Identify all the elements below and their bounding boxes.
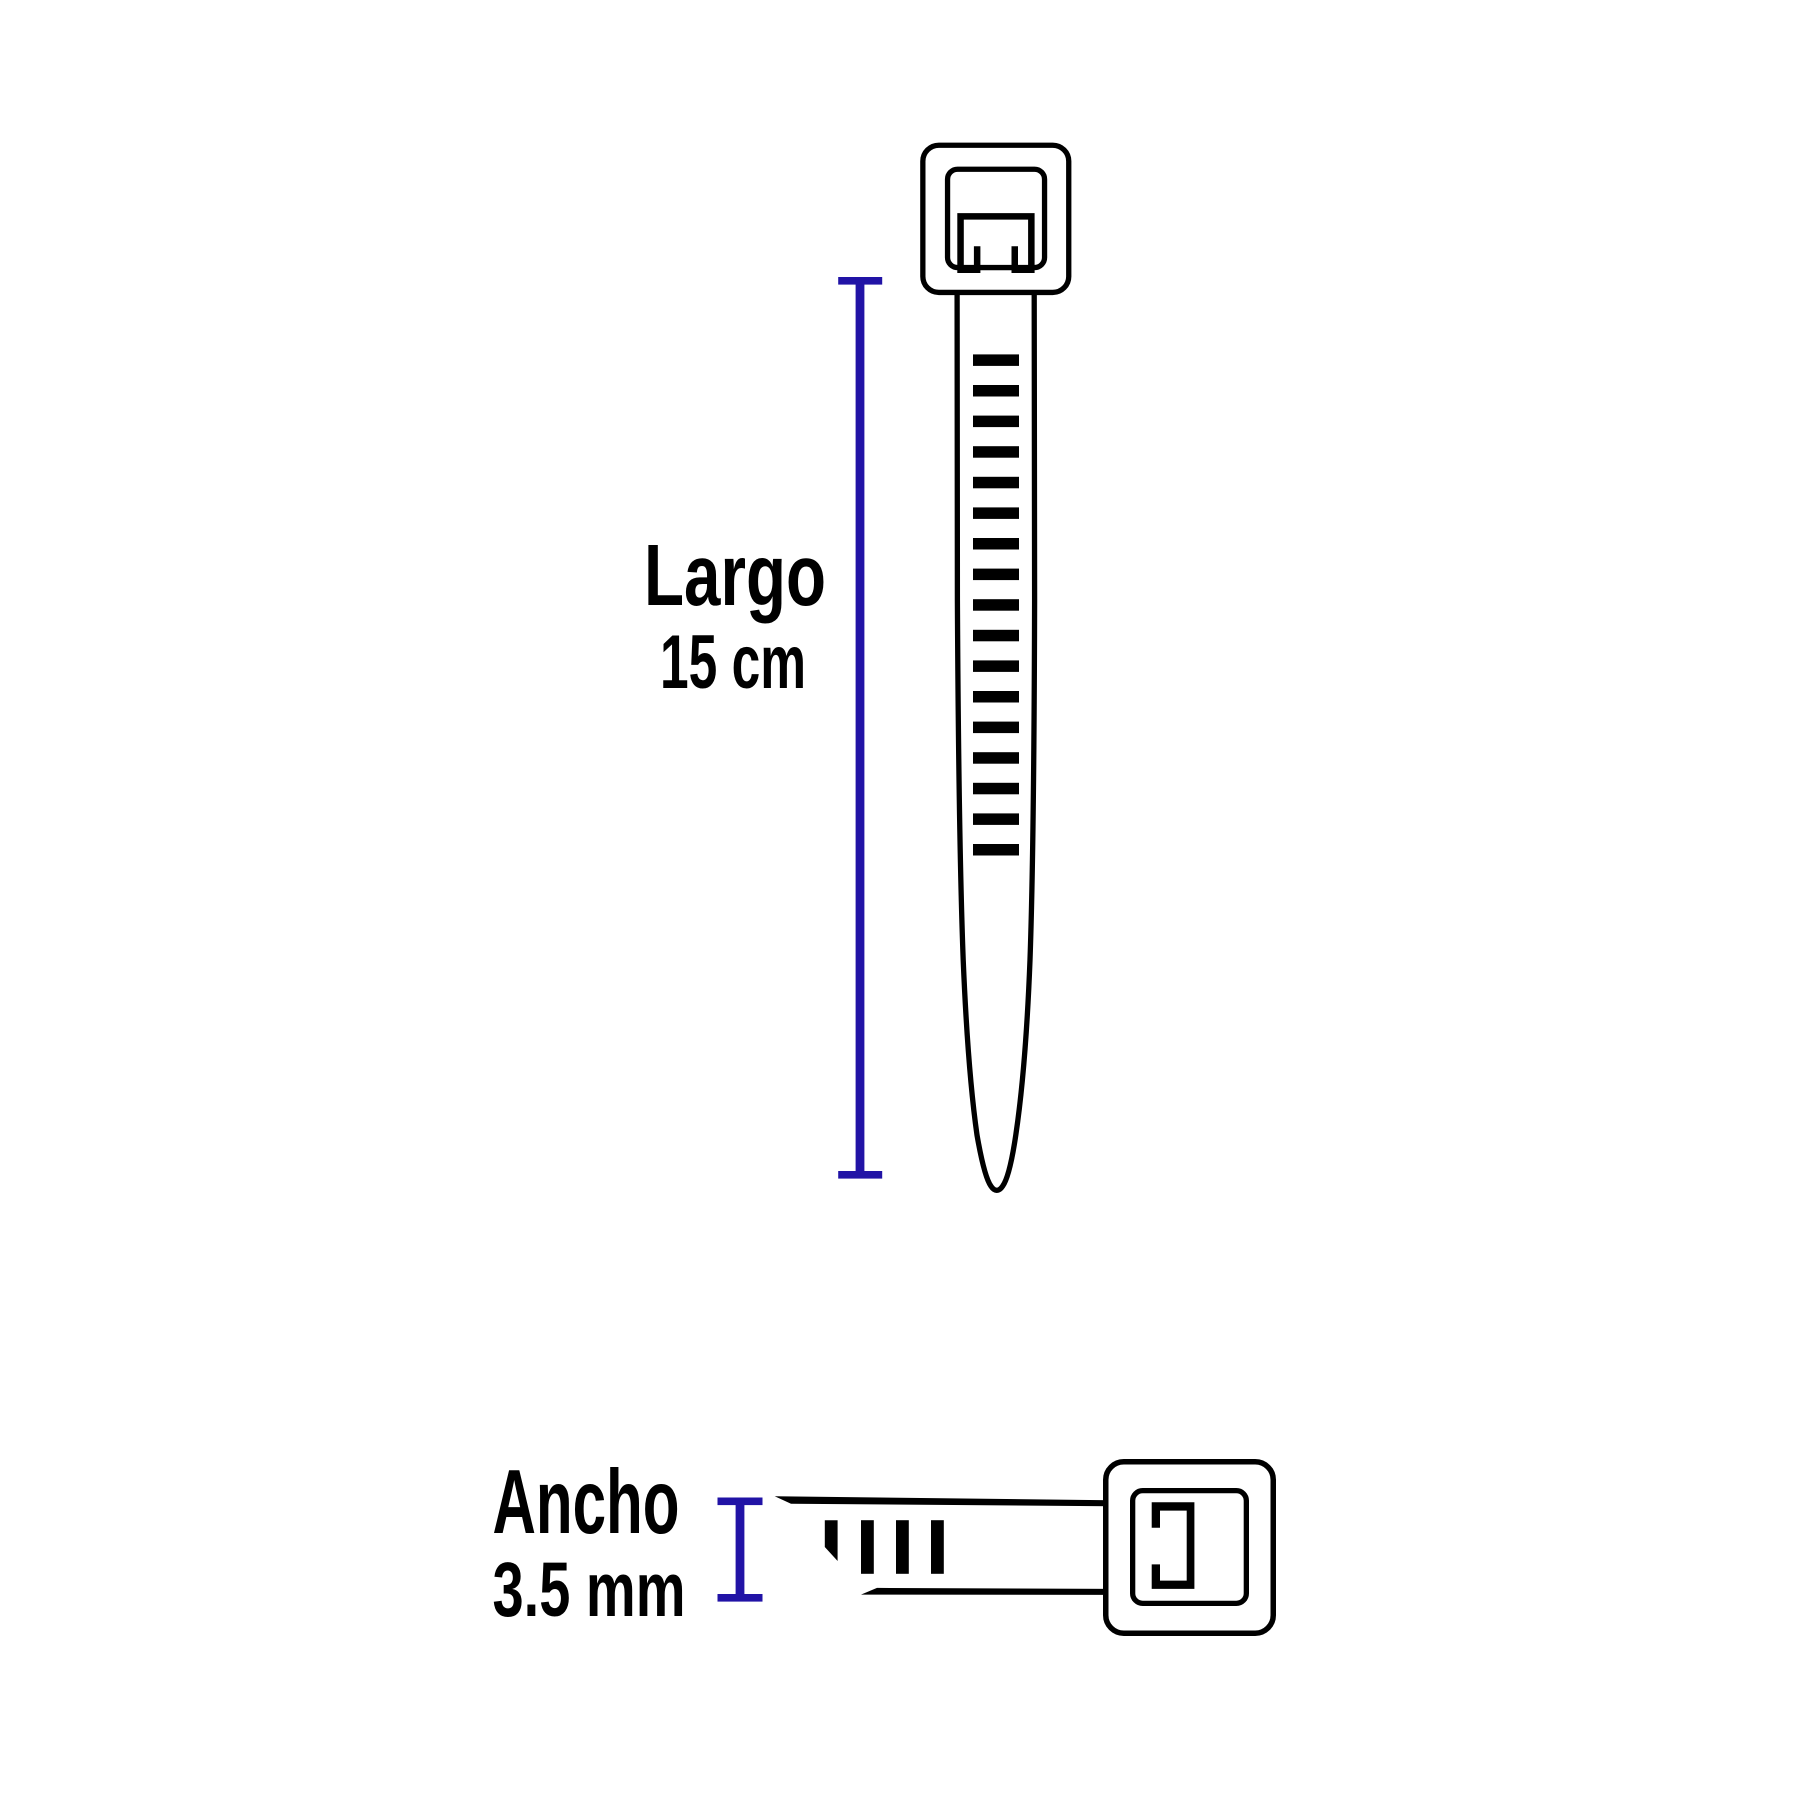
svg-text:15 cm: 15 cm bbox=[660, 620, 806, 705]
svg-text:Ancho: Ancho bbox=[493, 1452, 680, 1553]
svg-text:3.5 mm: 3.5 mm bbox=[493, 1547, 686, 1633]
svg-text:Largo: Largo bbox=[644, 527, 826, 624]
